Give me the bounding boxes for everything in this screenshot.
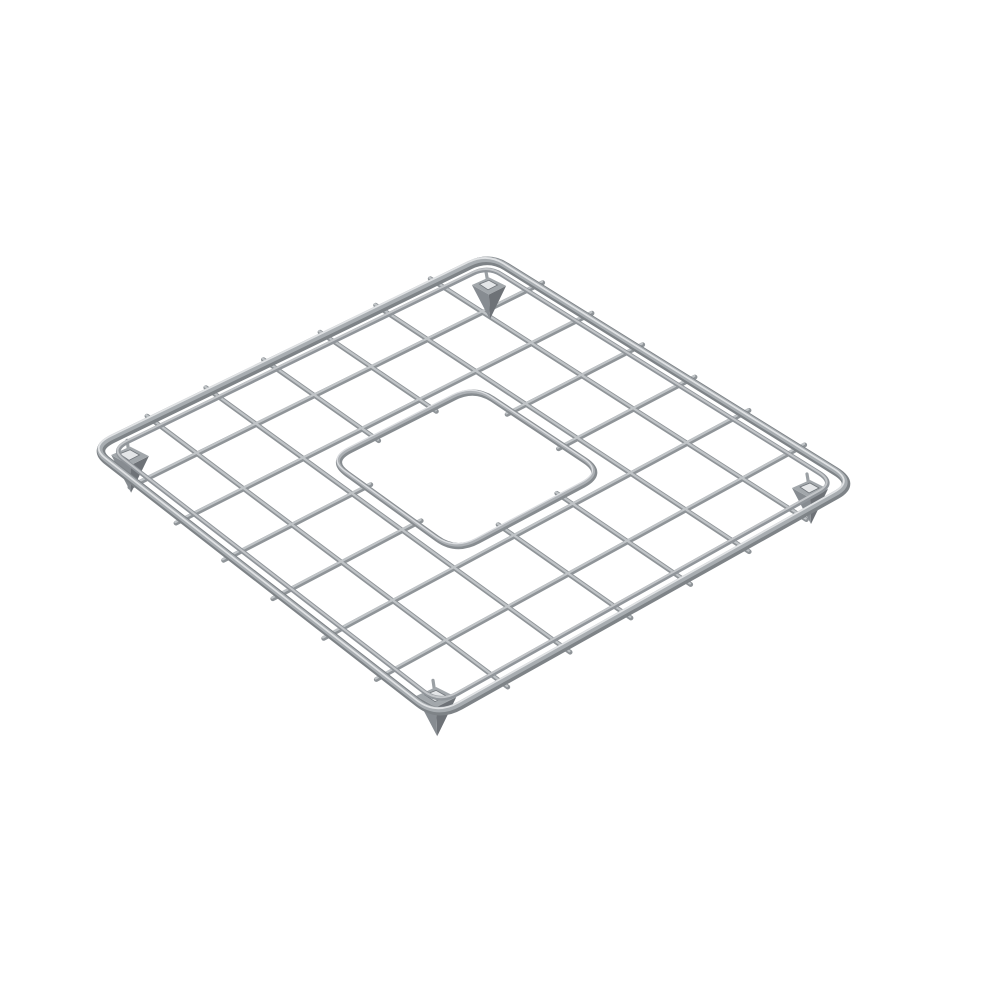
foot-top xyxy=(472,272,506,320)
opening-frame xyxy=(337,390,594,546)
sink-grid-product-image xyxy=(0,0,999,1000)
sink-grid-illustration xyxy=(0,0,999,1000)
grid-wires xyxy=(129,278,806,687)
inner-rail xyxy=(118,269,828,698)
